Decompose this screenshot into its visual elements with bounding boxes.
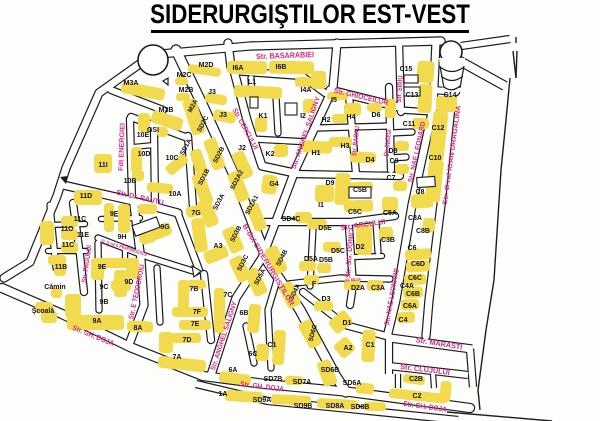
svg-text:C6B: C6B	[406, 291, 420, 298]
svg-text:7D: 7D	[183, 337, 192, 344]
svg-text:10A: 10A	[169, 191, 182, 198]
svg-text:I2: I2	[300, 113, 306, 120]
svg-text:C2B: C2B	[409, 376, 423, 383]
svg-text:D5A: D5A	[304, 256, 318, 263]
svg-text:7B: 7B	[190, 286, 199, 293]
svg-text:I5: I5	[331, 97, 337, 104]
svg-text:SD8A: SD8A	[326, 403, 345, 410]
svg-text:D3: D3	[322, 296, 331, 303]
svg-text:7C: 7C	[224, 292, 233, 299]
svg-text:H3: H3	[341, 143, 350, 150]
svg-text:K1: K1	[259, 113, 268, 120]
svg-text:9G: 9G	[160, 224, 170, 231]
svg-text:9C: 9C	[100, 284, 109, 291]
svg-text:9D: 9D	[125, 279, 134, 286]
svg-text:I6B: I6B	[276, 64, 287, 71]
svg-text:7E: 7E	[191, 321, 200, 328]
svg-text:SD9B: SD9B	[294, 403, 313, 410]
svg-text:C5A: C5A	[383, 210, 397, 217]
svg-text:11I: 11I	[98, 162, 107, 169]
svg-text:I4A: I4A	[301, 87, 312, 94]
svg-text:C4A: C4A	[400, 283, 414, 290]
svg-text:C3A: C3A	[371, 285, 385, 292]
svg-text:11D: 11D	[80, 193, 92, 200]
svg-text:A2: A2	[344, 345, 353, 352]
svg-text:M2D: M2D	[199, 62, 214, 69]
svg-text:Str. MILNA: Str. MILNA	[345, 277, 362, 283]
svg-text:8A: 8A	[134, 325, 143, 332]
svg-text:11C: 11C	[74, 216, 86, 223]
svg-text:K2: K2	[266, 151, 275, 158]
svg-text:D5B: D5B	[319, 257, 333, 264]
svg-text:M3B: M3B	[159, 107, 174, 114]
svg-text:SD6B: SD6B	[321, 367, 340, 374]
svg-text:C4: C4	[399, 317, 408, 324]
svg-text:G4: G4	[269, 181, 278, 188]
svg-text:C10: C10	[429, 155, 442, 162]
svg-text:C6D: C6D	[411, 261, 425, 268]
svg-text:6B: 6B	[240, 310, 249, 317]
svg-text:6C: 6C	[249, 351, 258, 358]
svg-text:C2: C2	[413, 393, 422, 400]
svg-text:J3: J3	[219, 112, 227, 119]
svg-text:C8: C8	[416, 189, 425, 196]
svg-text:D1: D1	[343, 320, 352, 327]
svg-text:H1: H1	[312, 150, 321, 157]
svg-text:10B: 10B	[124, 178, 137, 185]
svg-text:D9: D9	[326, 180, 335, 187]
svg-text:9E: 9E	[98, 264, 107, 271]
svg-text:C8B: C8B	[416, 228, 430, 235]
svg-text:C6A: C6A	[403, 303, 417, 310]
svg-text:10D: 10D	[138, 151, 151, 158]
svg-text:D6: D6	[372, 112, 381, 119]
svg-text:11E: 11E	[77, 232, 89, 239]
svg-text:9B: 9B	[100, 299, 109, 306]
svg-text:M2C: M2C	[177, 72, 192, 79]
svg-text:9A: 9A	[93, 318, 102, 325]
svg-text:C6: C6	[408, 245, 417, 252]
svg-text:10E: 10E	[137, 132, 150, 139]
svg-text:SD9A: SD9A	[253, 397, 272, 404]
svg-text:11B: 11B	[55, 264, 67, 271]
svg-text:J3: J3	[208, 89, 216, 96]
svg-text:D5E: D5E	[318, 225, 332, 232]
svg-text:Şcoală: Şcoală	[32, 308, 55, 315]
svg-text:C1: C1	[268, 342, 277, 349]
svg-text:I1: I1	[318, 202, 324, 209]
svg-text:M2B: M2B	[179, 87, 194, 94]
svg-text:7A: 7A	[173, 354, 182, 361]
svg-text:11C: 11C	[61, 226, 73, 233]
svg-text:SD7A: SD7A	[293, 379, 312, 386]
svg-text:11C: 11C	[62, 242, 74, 249]
svg-text:7G: 7G	[191, 210, 201, 217]
svg-text:C1: C1	[366, 342, 375, 349]
svg-text:C6C: C6C	[408, 275, 422, 282]
svg-text:SD8B: SD8B	[351, 404, 370, 411]
svg-text:9H: 9H	[118, 234, 127, 241]
svg-text:C9: C9	[390, 158, 399, 165]
svg-text:10C: 10C	[166, 155, 179, 162]
svg-text:9F: 9F	[110, 211, 119, 218]
svg-text:H4: H4	[347, 114, 356, 121]
svg-text:D5C: D5C	[331, 248, 345, 255]
svg-text:C13: C13	[406, 92, 419, 99]
svg-text:SD6A: SD6A	[343, 380, 362, 387]
svg-text:M3A: M3A	[124, 80, 139, 87]
svg-text:D2: D2	[356, 244, 365, 251]
svg-text:C12: C12	[432, 125, 445, 132]
svg-text:6A: 6A	[229, 367, 238, 374]
svg-text:I6A: I6A	[233, 65, 244, 72]
svg-text:A3: A3	[214, 243, 223, 250]
svg-text:C7: C7	[387, 175, 396, 182]
svg-text:1A: 1A	[219, 391, 228, 398]
svg-text:7F: 7F	[193, 309, 202, 316]
svg-text:L1: L1	[248, 79, 256, 86]
svg-text:F: F	[312, 281, 317, 288]
svg-text:C5B: C5B	[353, 187, 367, 194]
svg-text:C5C: C5C	[348, 209, 362, 216]
svg-text:C8A: C8A	[408, 215, 422, 222]
svg-text:J2: J2	[238, 145, 246, 152]
svg-text:SD4C: SD4C	[282, 216, 301, 223]
svg-text:C3B: C3B	[381, 237, 395, 244]
svg-text:H2: H2	[322, 117, 331, 124]
svg-text:Cămin: Cămin	[44, 284, 65, 291]
svg-text:D2A: D2A	[351, 285, 365, 292]
svg-text:C15: C15	[400, 66, 413, 73]
svg-text:C14: C14	[444, 92, 457, 99]
svg-text:D4: D4	[366, 157, 375, 164]
svg-text:C11: C11	[403, 121, 416, 128]
